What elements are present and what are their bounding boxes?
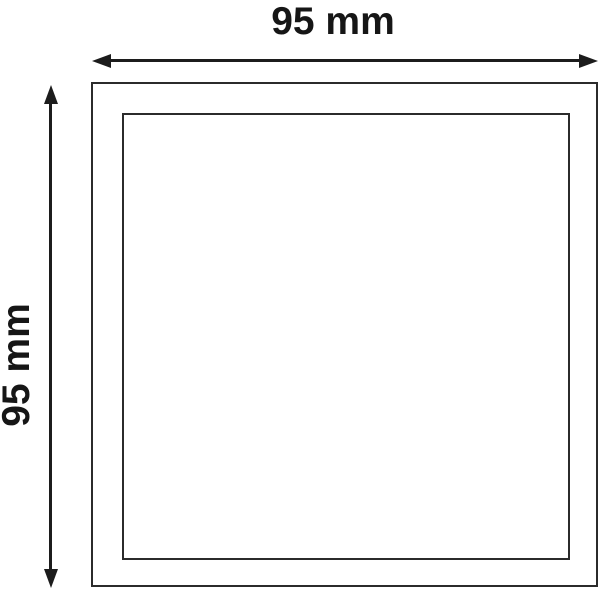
horizontal-arrow-shaft — [104, 59, 586, 62]
vertical-arrow-shaft — [49, 97, 52, 576]
vertical-dimension-arrow — [44, 85, 58, 588]
arrowhead-right-icon — [579, 54, 598, 68]
width-dimension-label: 95 mm — [133, 0, 533, 45]
height-dimension-label: 95 mm — [0, 303, 40, 427]
horizontal-dimension-arrow — [92, 54, 598, 68]
arrowhead-down-icon — [44, 569, 58, 588]
panel-inner-frame — [122, 113, 570, 560]
dimension-diagram: 95 mm 95 mm — [0, 0, 600, 600]
